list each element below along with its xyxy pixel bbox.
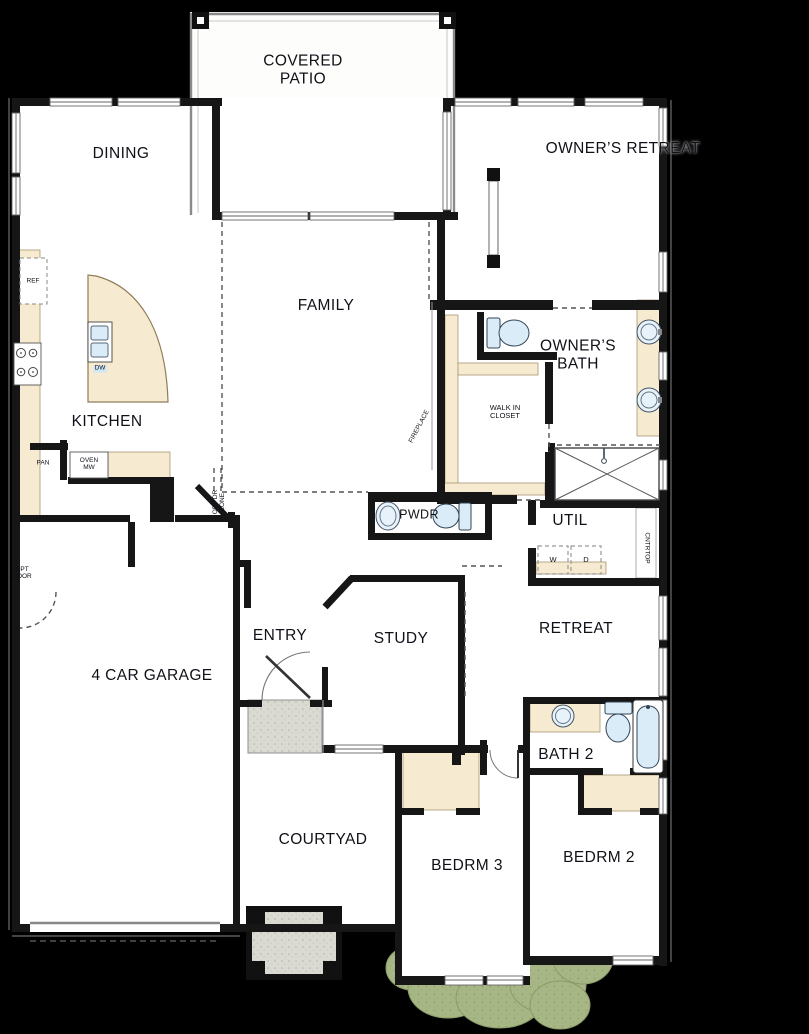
annotation-opt-dr-zone: OPT DR ZONE	[213, 490, 227, 514]
bath2-sink	[552, 705, 574, 727]
room-label-dining: DINING	[93, 145, 150, 163]
bedrm2-closet	[583, 775, 661, 811]
owners-bath-shower	[555, 448, 659, 500]
garage-door	[30, 923, 220, 941]
closet-shelf-top	[458, 363, 538, 375]
pwdr-sink	[376, 502, 400, 530]
room-label-retreat: RETREAT	[539, 620, 613, 638]
annotation-dryer: D	[583, 556, 588, 564]
room-label-kitchen: KITCHEN	[72, 413, 143, 431]
room-label-study: STUDY	[374, 630, 429, 648]
room-label-family: FAMILY	[298, 297, 354, 315]
owners-retreat-dresser	[487, 168, 500, 268]
room-label-courtyard: COURTYAD	[279, 831, 368, 849]
room-label-bath2: BATH 2	[538, 746, 594, 764]
annotation-washer: W	[549, 556, 556, 564]
annotation-cntrtop: CNTRTOP	[643, 532, 650, 563]
room-label-bedrm2: BEDRM 2	[563, 849, 635, 867]
bedrm3-closet	[403, 752, 479, 810]
entry-porch-paving	[248, 700, 322, 753]
room-label-util: UTIL	[552, 512, 587, 530]
room-label-covered-patio: COVERED PATIO	[263, 53, 342, 90]
range-stove	[14, 343, 41, 385]
room-label-bedrm3: BEDRM 3	[431, 857, 503, 875]
room-label-owners-bath: OWNER’S BATH	[540, 338, 616, 375]
floor-plan: COVERED PATIO DINING OWNER’S RETREAT FAM…	[0, 0, 809, 1034]
annotation-pan: PAN	[37, 461, 50, 468]
bath2-tub	[633, 700, 663, 773]
room-label-entry: ENTRY	[253, 627, 307, 645]
room-label-pwdr: PWDR	[399, 508, 439, 523]
annotation-oven-mw: OVEN MW	[80, 458, 98, 472]
kitchen-rear-counter	[108, 452, 170, 478]
owners-bath-toilet	[487, 318, 529, 348]
room-label-owners-retreat: OWNER’S RETREAT	[546, 140, 701, 158]
annotation-opt-door: OPT DOOR	[12, 567, 32, 581]
dishwasher-sink	[88, 322, 112, 362]
room-label-walk-in-closet: WALK IN CLOSET	[490, 404, 521, 421]
annotation-dw: DW	[94, 366, 107, 373]
annotation-ref: REF	[27, 279, 40, 286]
bath2-toilet	[605, 702, 632, 742]
room-label-garage: 4 CAR GARAGE	[91, 667, 212, 685]
closet-shelf-left	[445, 315, 458, 493]
